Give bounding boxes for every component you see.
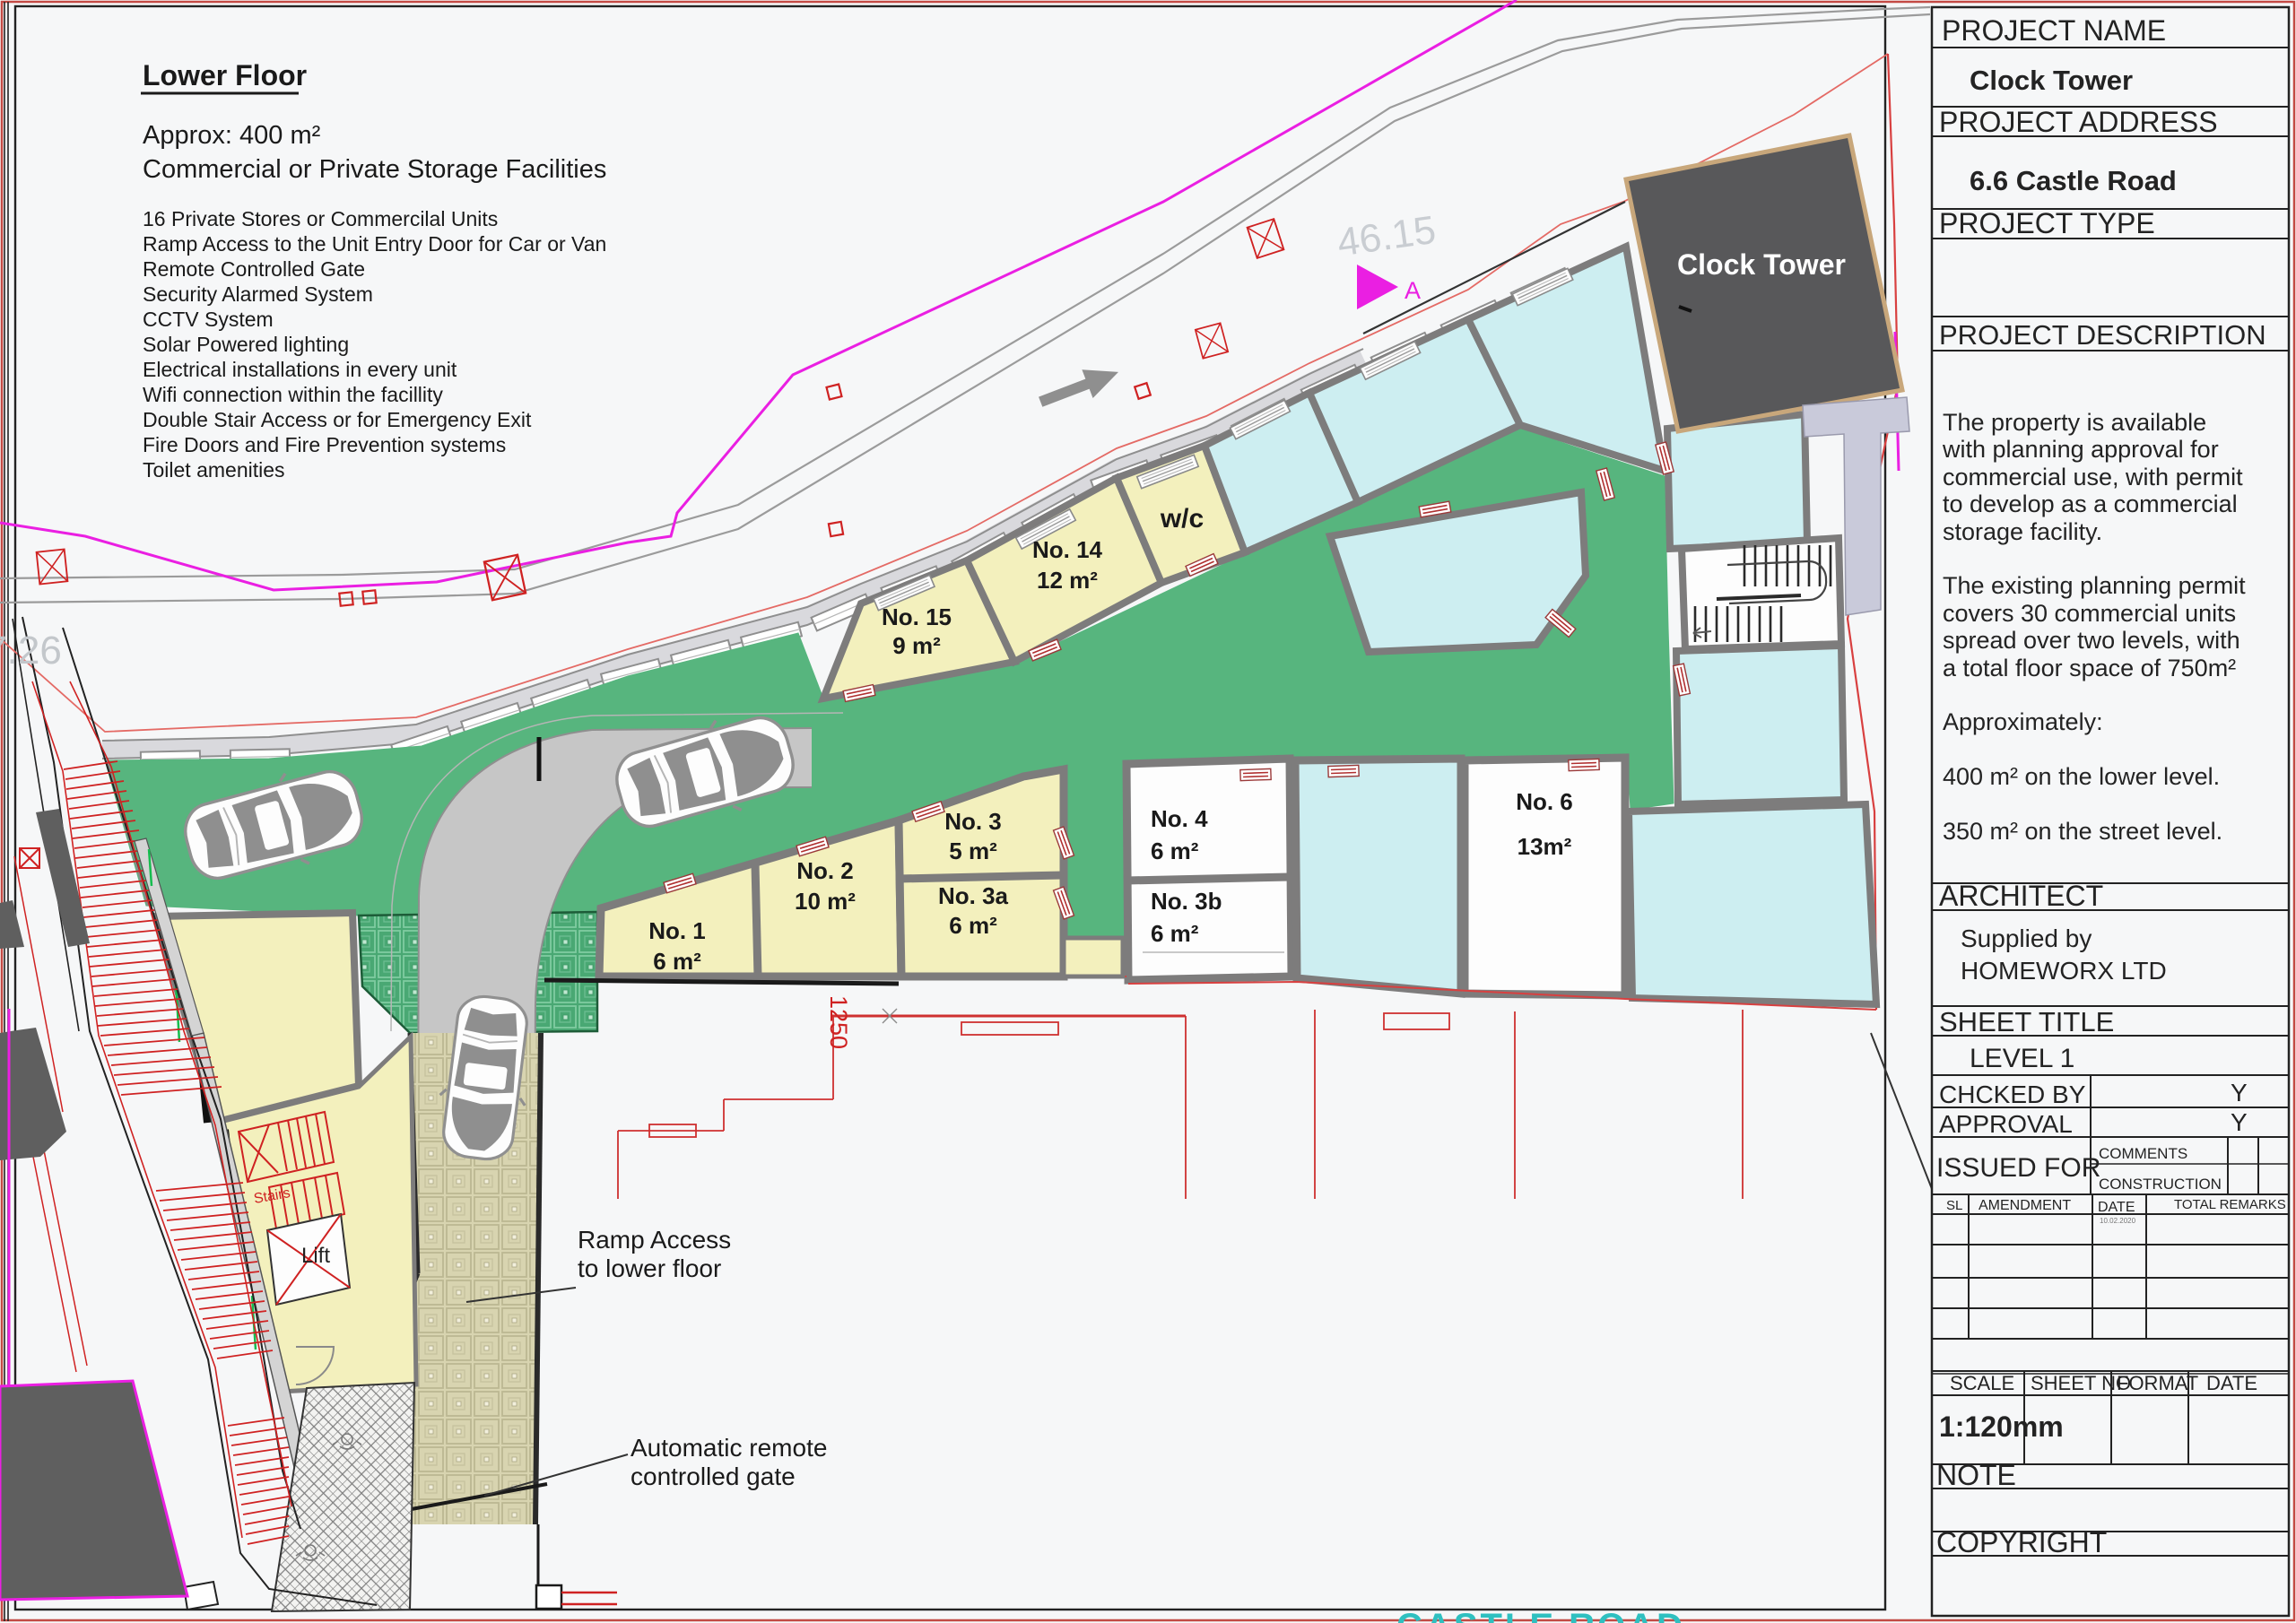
- svg-text:to develop as a commercial: to develop as a commercial: [1943, 490, 2238, 517]
- svg-text:CCTV System: CCTV System: [143, 308, 274, 331]
- svg-text:Lower Floor: Lower Floor: [143, 59, 307, 91]
- svg-text:No. 3b: No. 3b: [1151, 888, 1222, 915]
- svg-text:Double Stair Access or for Eme: Double Stair Access or for Emergency Exi…: [143, 408, 532, 431]
- svg-text:12 m²: 12 m²: [1037, 567, 1098, 594]
- svg-text:COMMENTS: COMMENTS: [2099, 1145, 2187, 1162]
- svg-text:TOTAL REMARKS: TOTAL REMARKS: [2174, 1197, 2286, 1212]
- svg-text:to lower floor: to lower floor: [578, 1254, 721, 1282]
- svg-text:6 m²: 6 m²: [1151, 838, 1199, 864]
- svg-text:with planning approval for: with planning approval for: [1942, 436, 2219, 463]
- svg-text:FORMAT: FORMAT: [2117, 1372, 2198, 1394]
- svg-text:Ramp Access to the Unit Entry: Ramp Access to the Unit Entry Door for C…: [143, 232, 606, 256]
- svg-text:DATE: DATE: [2206, 1372, 2257, 1394]
- svg-text:No. 3a: No. 3a: [938, 882, 1009, 909]
- svg-text:350 m² on the street level.: 350 m² on the street level.: [1943, 818, 2222, 845]
- svg-text:ISSUED FOR: ISSUED FOR: [1936, 1153, 2100, 1183]
- svg-text:PROJECT NAME: PROJECT NAME: [1942, 14, 2166, 47]
- svg-text:The existing planning permit: The existing planning permit: [1943, 572, 2246, 599]
- svg-text:w/c: w/c: [1160, 504, 1204, 534]
- svg-text:No. 3: No. 3: [944, 808, 1002, 835]
- svg-text:PROJECT DESCRIPTION: PROJECT DESCRIPTION: [1939, 319, 2266, 351]
- svg-text:Security Alarmed System: Security Alarmed System: [143, 282, 373, 306]
- svg-text:LEVEL 1: LEVEL 1: [1970, 1044, 2074, 1073]
- svg-text:6 m²: 6 m²: [1151, 920, 1199, 947]
- svg-text:10.02.2020: 10.02.2020: [2100, 1217, 2136, 1225]
- svg-text:1:120mm: 1:120mm: [1939, 1410, 2064, 1443]
- svg-text:The property is available: The property is available: [1943, 409, 2206, 436]
- svg-text:NOTE: NOTE: [1936, 1459, 2016, 1491]
- svg-text:CASTLE ROAD: CASTLE ROAD: [1396, 1607, 1685, 1623]
- svg-text:ARCHITECT: ARCHITECT: [1939, 880, 2103, 912]
- svg-text:Solar Powered lighting: Solar Powered lighting: [143, 333, 349, 356]
- svg-text:13m²: 13m²: [1518, 833, 1572, 860]
- svg-text:Automatic remote: Automatic remote: [631, 1434, 827, 1462]
- svg-text:Electrical installations in ev: Electrical installations in every unit: [143, 358, 457, 381]
- svg-text:storage facility.: storage facility.: [1943, 518, 2102, 545]
- svg-text:HOMEWORX LTD: HOMEWORX LTD: [1961, 957, 2167, 985]
- svg-text:a total floor space of 750m²: a total floor space of 750m²: [1943, 655, 2236, 681]
- svg-text:Lift: Lift: [301, 1244, 330, 1268]
- svg-text:commercial use, with permit: commercial use, with permit: [1943, 464, 2243, 490]
- svg-text:PROJECT ADDRESS: PROJECT ADDRESS: [1939, 106, 2218, 138]
- svg-text:6 m²: 6 m²: [949, 912, 997, 939]
- svg-text:Toilet amenities: Toilet amenities: [143, 458, 285, 482]
- svg-text:No. 6: No. 6: [1516, 788, 1573, 815]
- svg-text:CONSTRUCTION: CONSTRUCTION: [2099, 1176, 2222, 1193]
- svg-text:Clock Tower: Clock Tower: [1970, 65, 2133, 96]
- svg-text:COPYRIGHT: COPYRIGHT: [1936, 1526, 2107, 1558]
- svg-text:7.26: 7.26: [0, 629, 62, 673]
- svg-text:Supplied by: Supplied by: [1961, 924, 2092, 952]
- svg-text:APPROVAL: APPROVAL: [1939, 1110, 2073, 1138]
- svg-text:No. 2: No. 2: [796, 857, 854, 884]
- svg-text:Remote Controlled Gate: Remote Controlled Gate: [143, 257, 365, 281]
- svg-text:Fire Doors and Fire Prevention: Fire Doors and Fire Prevention systems: [143, 433, 506, 456]
- svg-text:6 m²: 6 m²: [653, 948, 701, 975]
- svg-text:Approximately:: Approximately:: [1943, 708, 2103, 735]
- svg-text:SL: SL: [1946, 1198, 1962, 1213]
- svg-text:1250: 1250: [825, 995, 852, 1049]
- svg-text:CHCKED BY: CHCKED BY: [1939, 1081, 2086, 1108]
- svg-text:Commercial or Private Storage: Commercial or Private Storage Facilities: [143, 155, 606, 184]
- svg-text:6.6 Castle Road: 6.6 Castle Road: [1970, 165, 2177, 196]
- svg-text:9 m²: 9 m²: [892, 632, 941, 659]
- svg-text:10 m²: 10 m²: [795, 888, 856, 915]
- svg-text:No. 15: No. 15: [882, 603, 952, 630]
- svg-text:A: A: [1405, 277, 1421, 304]
- svg-text:Clock Tower: Clock Tower: [1677, 248, 1846, 281]
- svg-text:covers 30 commercial units: covers 30 commercial units: [1943, 600, 2236, 627]
- svg-text:5 m²: 5 m²: [949, 838, 997, 864]
- svg-text:SHEET TITLE: SHEET TITLE: [1939, 1006, 2114, 1037]
- svg-text:No. 4: No. 4: [1151, 805, 1208, 832]
- svg-text:PROJECT TYPE: PROJECT TYPE: [1939, 207, 2155, 239]
- svg-text:Ramp Access: Ramp Access: [578, 1226, 731, 1254]
- svg-text:DATE: DATE: [2098, 1200, 2135, 1215]
- svg-text:No. 14: No. 14: [1032, 536, 1103, 563]
- svg-text:Y: Y: [2231, 1079, 2248, 1107]
- svg-text:16 Private Stores or Commercil: 16 Private Stores or Commercilal Units: [143, 207, 498, 230]
- svg-text:AMENDMENT: AMENDMENT: [1979, 1198, 2071, 1213]
- svg-text:Wifi connection within the fac: Wifi connection within the facillity: [143, 383, 443, 406]
- svg-text:controlled gate: controlled gate: [631, 1462, 796, 1490]
- svg-text:Approx: 400 m²: Approx: 400 m²: [143, 121, 321, 150]
- svg-text:Y: Y: [2231, 1108, 2248, 1136]
- svg-text:SCALE: SCALE: [1950, 1372, 2014, 1394]
- svg-text:No. 1: No. 1: [648, 917, 706, 944]
- svg-text:spread over two levels, with: spread over two levels, with: [1943, 627, 2240, 654]
- svg-text:400 m² on the lower level.: 400 m² on the lower level.: [1943, 763, 2220, 790]
